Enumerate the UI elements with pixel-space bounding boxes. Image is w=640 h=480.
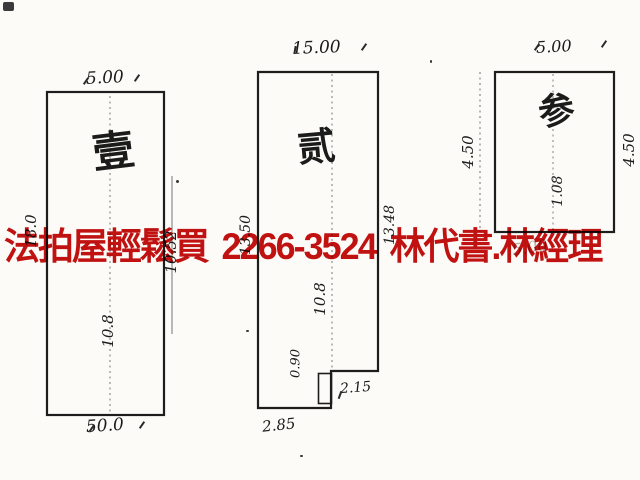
parcel-two-inner-dimension-2: 0.90	[289, 339, 304, 389]
parcel-three-inner-dimension: 1.08	[550, 166, 566, 216]
parcel-two-number: 贰	[295, 114, 338, 172]
parcel-two-top-dimension: 15.00	[292, 37, 341, 59]
parcel-one-inner-dimension: 10.8	[99, 306, 117, 356]
scanned-survey-page: 5.00 壹 10.8 18.0 10.52 50.0 15.00 贰 10.8…	[0, 0, 640, 480]
parcel-three-right-dimension: 4.50	[620, 120, 638, 180]
parcel-one-number: 壹	[88, 116, 137, 182]
red-ad-overlay-text: 法拍屋輕鬆買 2266-3524 林代書.林經理	[4, 216, 621, 270]
scan-speckle	[300, 455, 303, 457]
parcel-three-left-dimension: 4.50	[459, 122, 477, 182]
parcel-one-top-dimension: 5.00	[86, 67, 125, 89]
scan-speckle	[430, 60, 432, 63]
scan-speckle	[3, 2, 14, 11]
parcel-two-inner-dimension: 10.8	[311, 274, 329, 324]
scan-speckle	[246, 330, 249, 332]
parcel-two-notch-dimension: 2.15	[339, 379, 371, 397]
parcel-two-bottom-dimension: 2.85	[261, 414, 296, 435]
parcel-three-top-dimension: 5.00	[536, 36, 573, 57]
scan-speckle	[176, 180, 179, 183]
parcel-two-step-box	[319, 374, 332, 404]
